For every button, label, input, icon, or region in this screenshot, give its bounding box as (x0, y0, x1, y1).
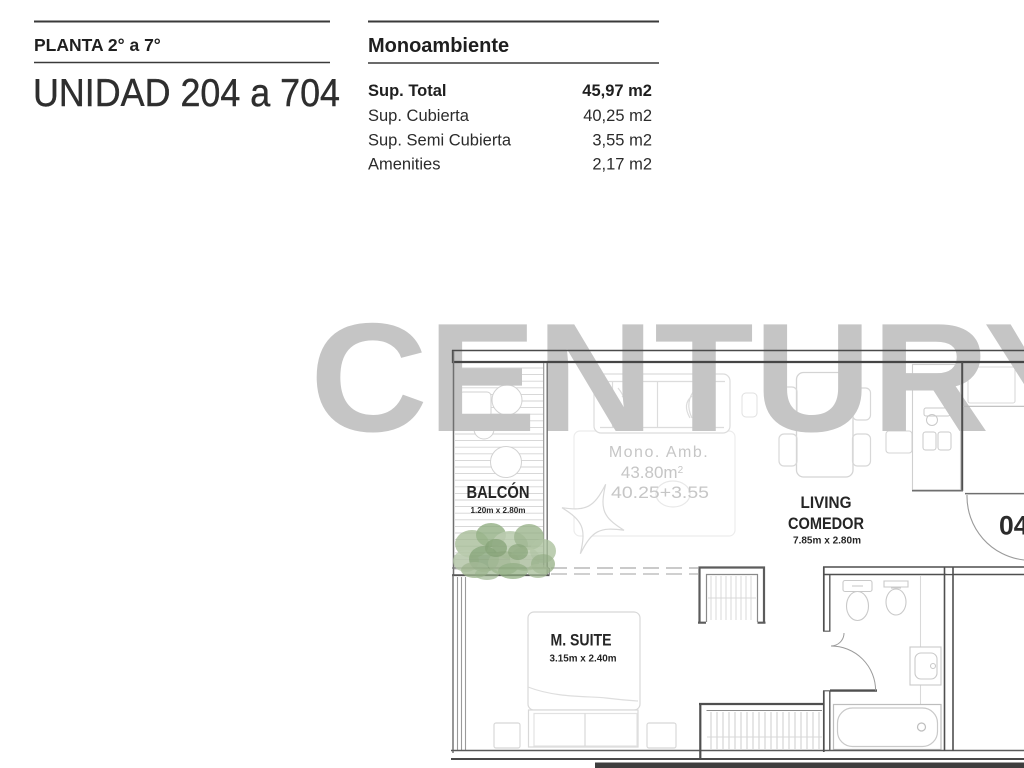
svg-text:UNIDAD 204 a 704: UNIDAD 204 a 704 (33, 72, 340, 115)
svg-text:LIVING: LIVING (801, 494, 852, 512)
svg-text:43.80m2: 43.80m2 (621, 463, 684, 482)
svg-text:Sup. Semi Cubierta: Sup. Semi Cubierta (368, 132, 512, 150)
svg-text:CENTURY: CENTURY (310, 291, 1024, 464)
svg-text:Amenities: Amenities (368, 156, 440, 174)
svg-text:45,97 m2: 45,97 m2 (582, 82, 652, 100)
svg-text:COMEDOR: COMEDOR (788, 515, 864, 533)
svg-text:3.15m x 2.40m: 3.15m x 2.40m (550, 653, 617, 665)
svg-text:BALCÓN: BALCÓN (467, 481, 530, 502)
svg-text:Sup. Cubierta: Sup. Cubierta (368, 107, 470, 125)
svg-text:40,25 m2: 40,25 m2 (583, 107, 652, 125)
svg-text:3,55 m2: 3,55 m2 (592, 132, 652, 150)
svg-text:Sup. Total: Sup. Total (368, 82, 447, 100)
svg-text:M. SUITE: M. SUITE (551, 631, 612, 650)
svg-text:40.25+3.55: 40.25+3.55 (611, 483, 709, 502)
svg-text:04: 04 (999, 511, 1024, 541)
svg-text:PLANTA 2° a 7°: PLANTA 2° a 7° (34, 35, 161, 55)
svg-text:1.20m x 2.80m: 1.20m x 2.80m (471, 505, 526, 515)
svg-text:2,17 m2: 2,17 m2 (592, 156, 652, 174)
svg-text:Mono. Amb.: Mono. Amb. (609, 444, 709, 461)
svg-text:7.85m x 2.80m: 7.85m x 2.80m (793, 535, 861, 547)
svg-text:Monoambiente: Monoambiente (368, 35, 509, 57)
